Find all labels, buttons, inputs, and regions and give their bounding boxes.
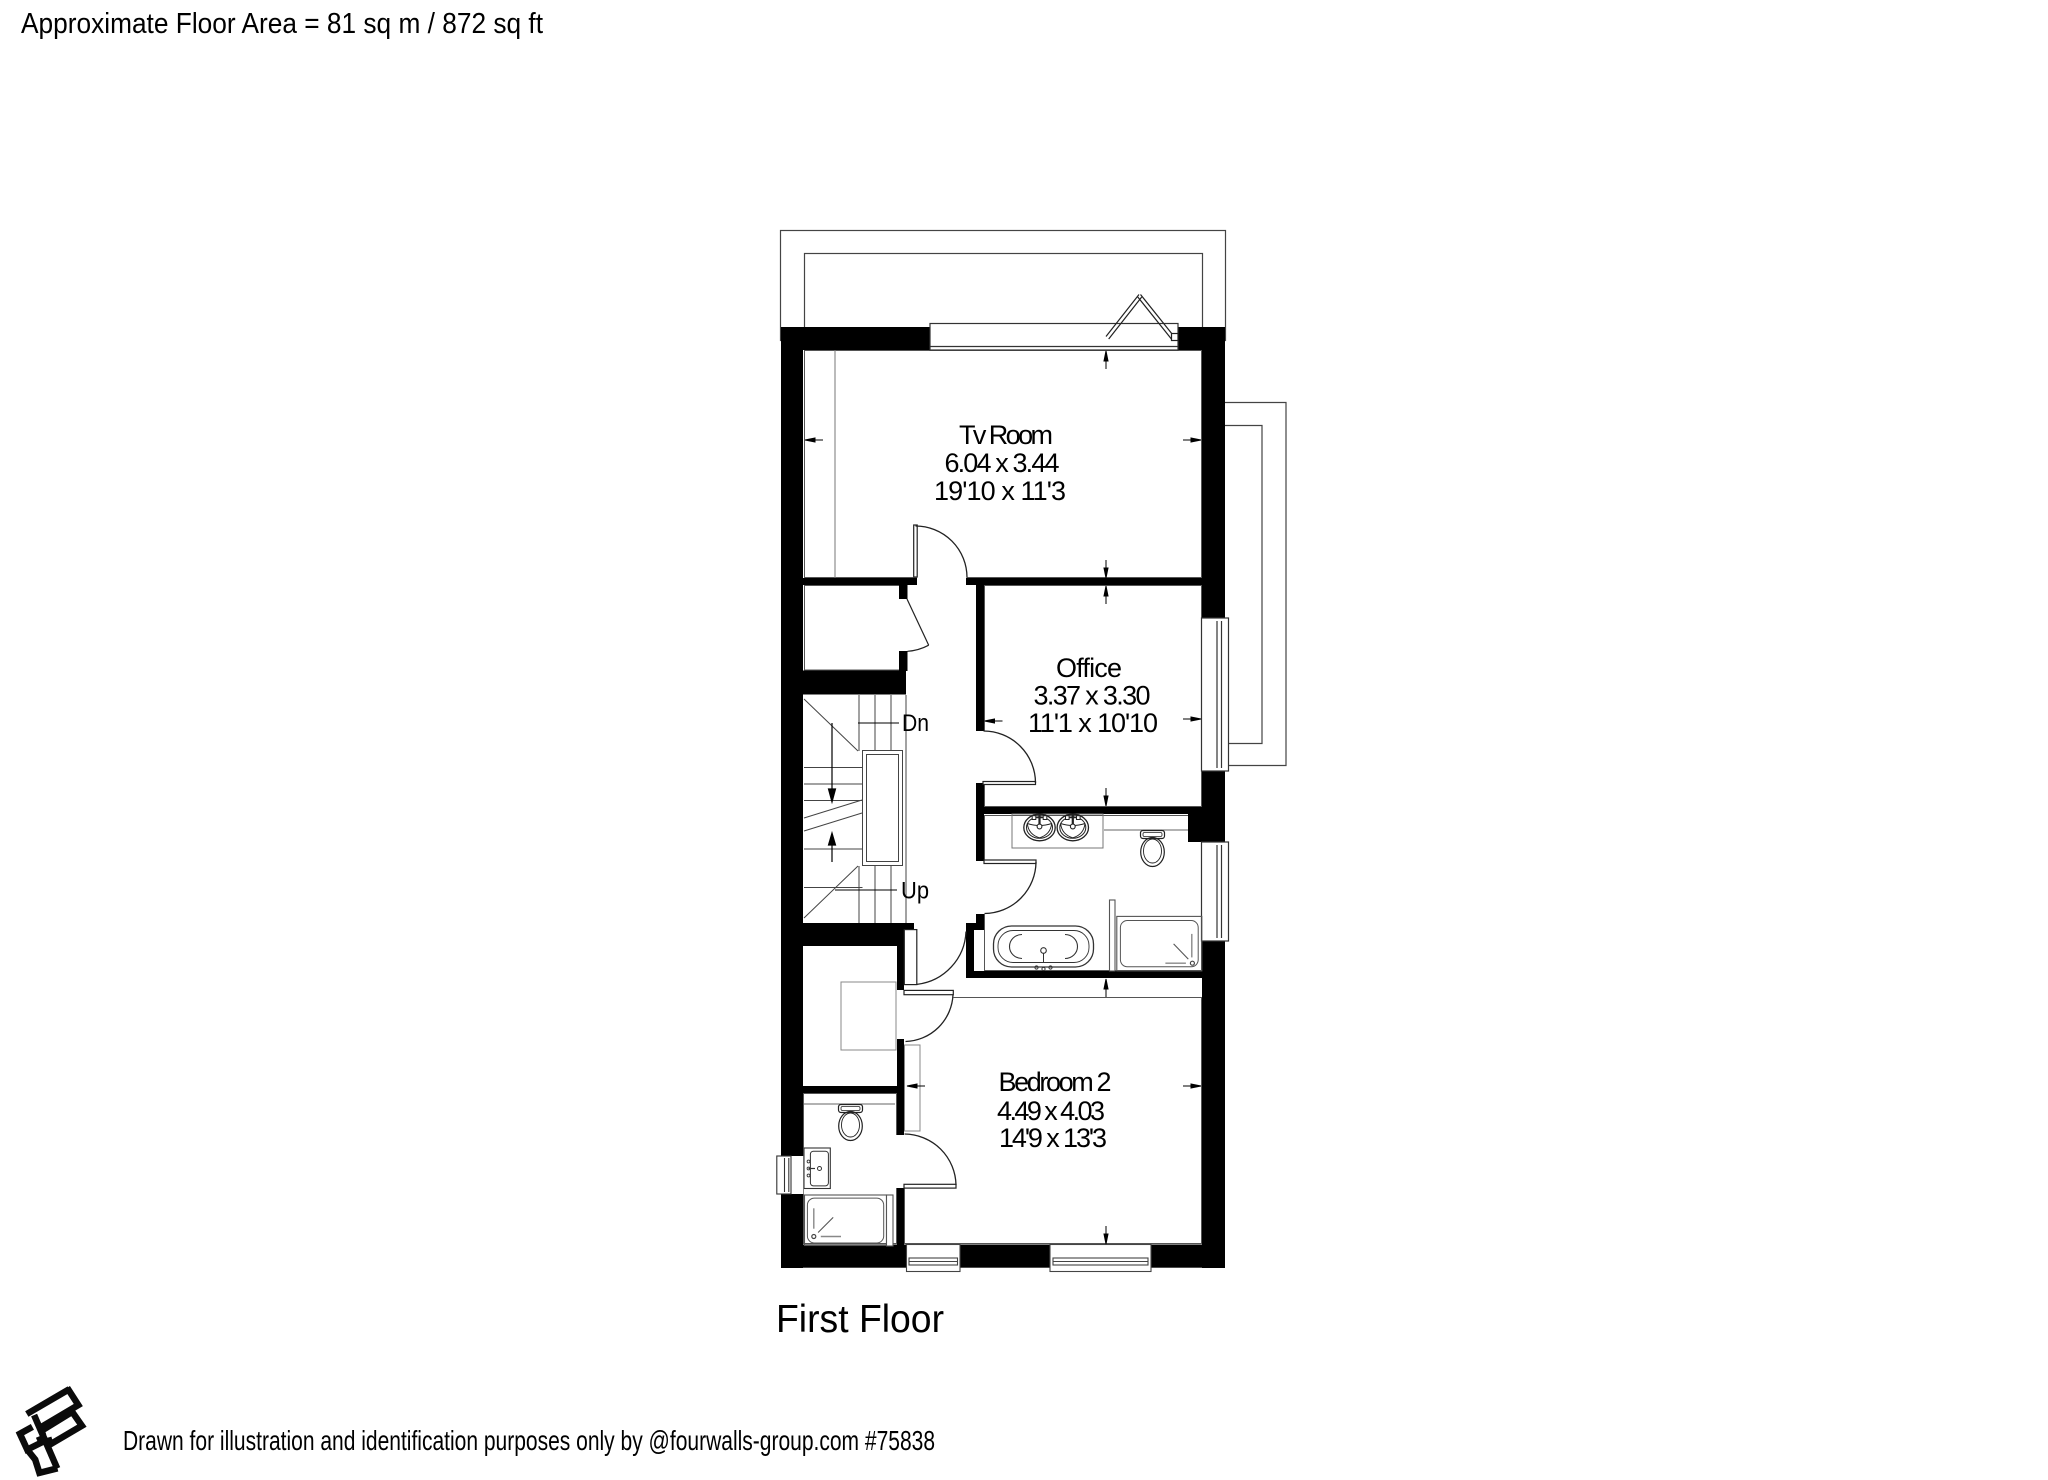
svg-text:6.04 x 3.44: 6.04 x 3.44 [945, 448, 1060, 478]
svg-text:Up: Up [901, 878, 929, 905]
svg-text:Bedroom 2: Bedroom 2 [999, 1067, 1112, 1097]
svg-text:First Floor: First Floor [776, 1298, 944, 1341]
svg-text:Dn: Dn [902, 710, 929, 737]
svg-text:11'1 x 10'10: 11'1 x 10'10 [1028, 708, 1158, 738]
svg-text:Approximate Floor Area = 81 sq: Approximate Floor Area = 81 sq m / 872 s… [21, 8, 543, 40]
svg-text:14'9 x 13'3: 14'9 x 13'3 [999, 1123, 1107, 1153]
svg-text:19'10 x 11'3: 19'10 x 11'3 [934, 476, 1066, 506]
svg-text:Office: Office [1056, 653, 1122, 683]
svg-text:Drawn for illustration and ide: Drawn for illustration and identificatio… [123, 1425, 935, 1456]
svg-text:4.49 x 4.03: 4.49 x 4.03 [997, 1096, 1105, 1126]
svg-text:Tv Room: Tv Room [959, 420, 1053, 450]
svg-text:3.37 x 3.30: 3.37 x 3.30 [1034, 681, 1151, 711]
